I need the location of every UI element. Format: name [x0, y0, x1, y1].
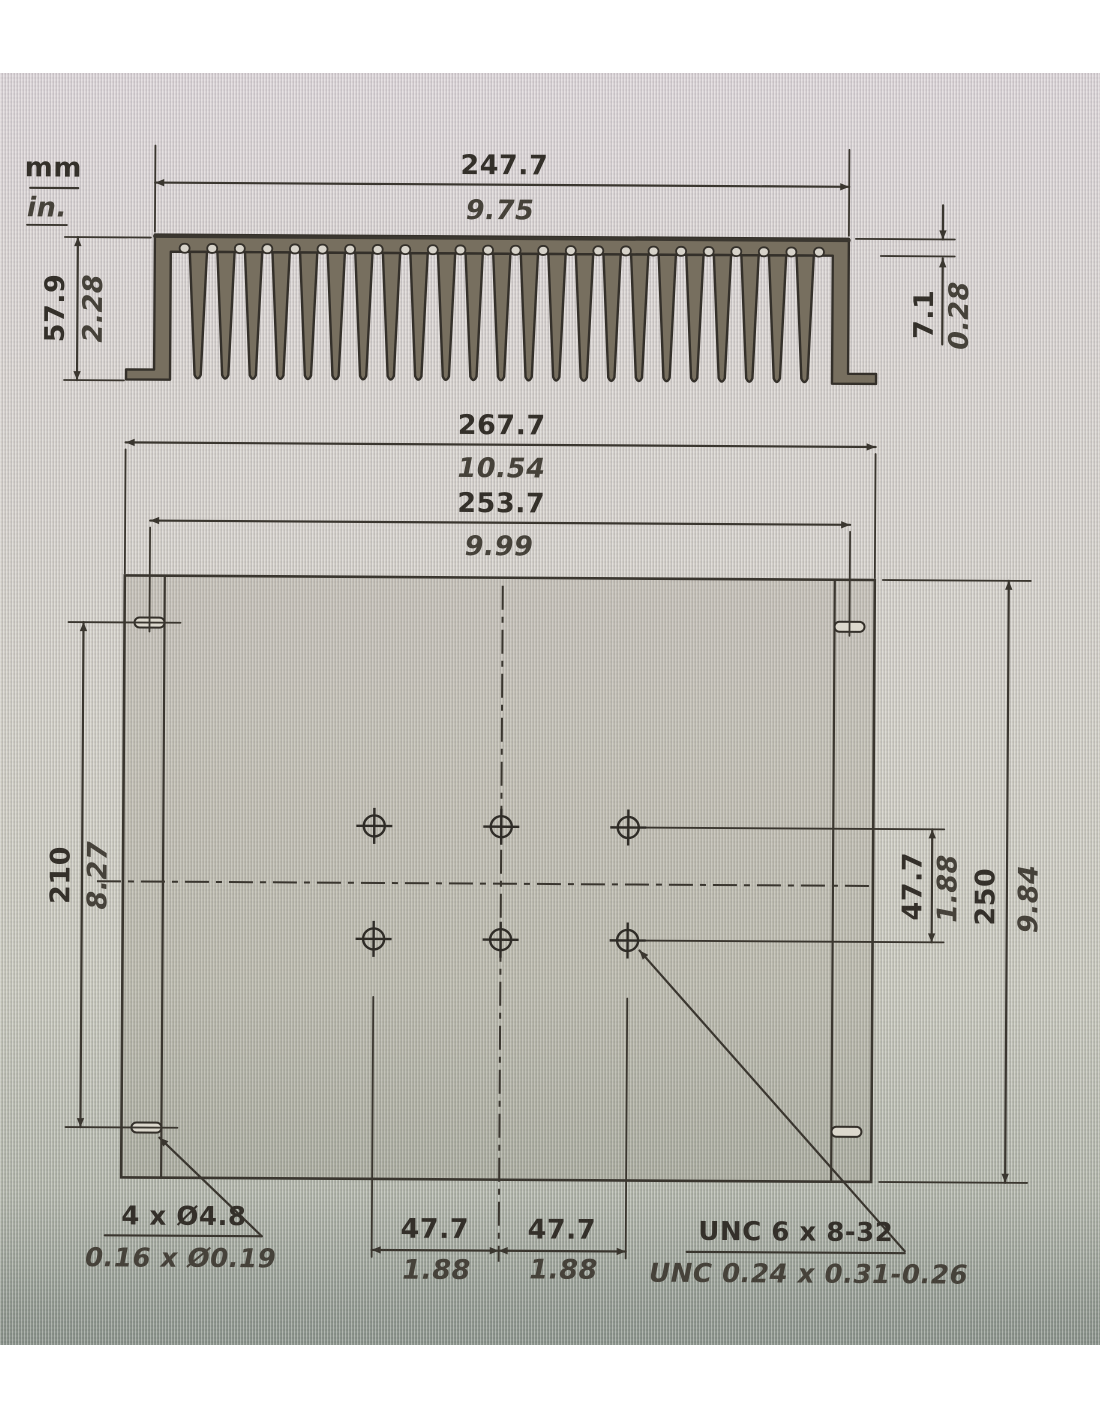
slot-notch — [235, 244, 245, 253]
slot-notch — [704, 247, 714, 256]
fin — [630, 254, 648, 381]
fin — [686, 255, 704, 382]
slot-notch — [593, 246, 603, 255]
dim-line-hole-col-right — [499, 1251, 626, 1252]
slot-notch — [345, 245, 355, 254]
fin — [437, 253, 455, 380]
ext-line — [125, 449, 126, 573]
ext-line — [149, 528, 150, 632]
dim-hole-col-left-mm: 47.7 — [400, 1216, 469, 1243]
dim-base-thickness-mm: 7.1 — [911, 290, 938, 340]
slot-notch — [648, 247, 658, 256]
slot-notch — [483, 246, 493, 255]
mounting-slot-bottom-right — [831, 1127, 861, 1137]
dim-line-fin-width — [155, 183, 849, 187]
fin — [768, 255, 786, 382]
dim-overall-width-mm: 267.7 — [458, 412, 546, 440]
dim-hole-col-right-in: 1.88 — [529, 1256, 598, 1283]
fin — [217, 252, 235, 379]
slot-notch — [428, 245, 438, 254]
dim-line-hole-col-left — [372, 1250, 499, 1251]
fin — [548, 254, 566, 381]
slot-notch — [814, 248, 824, 257]
ext-line — [849, 532, 850, 636]
dim-line-overall-width — [126, 442, 876, 447]
dim-section-height-mm: 57.9 — [42, 274, 69, 343]
ext-line — [155, 146, 156, 232]
slot-notch — [180, 244, 190, 253]
dim-fin-width-in: 9.75 — [466, 197, 535, 224]
slot-notch — [759, 247, 769, 256]
fin — [520, 254, 538, 381]
ext-line — [65, 1127, 177, 1128]
slot-notch — [207, 244, 217, 253]
dim-fin-width-mm: 247.7 — [460, 152, 548, 180]
fin — [741, 255, 759, 382]
ext-line — [69, 622, 181, 623]
fin — [272, 252, 290, 379]
ext-line — [849, 150, 850, 236]
callout-bar-mounting-slots — [105, 1235, 262, 1236]
fin — [575, 254, 593, 381]
fin — [796, 255, 814, 382]
fin — [299, 252, 317, 379]
slot-notch — [621, 246, 631, 255]
fin — [658, 255, 676, 382]
fin — [465, 253, 483, 380]
slot-notch — [566, 246, 576, 255]
dim-slot-vertical-in: 8.27 — [84, 841, 111, 910]
fin — [713, 255, 731, 382]
callout-mounting-slots-in: 0.16 x Ø0.19 — [85, 1245, 276, 1272]
slot-notch — [317, 245, 327, 254]
screen-photo: mm in. 247.7 9.75 57.9 2.28 7.1 0.28 267… — [0, 0, 1100, 1422]
dim-hole-col-right-mm: 47.7 — [527, 1216, 596, 1243]
slot-notch — [400, 245, 410, 254]
slot-notch — [786, 247, 796, 256]
dim-hole-row-mm: 47.7 — [899, 852, 926, 921]
callout-tapped-holes-mm: UNC 6 x 8-32 — [698, 1219, 893, 1246]
units-metric-label: mm — [25, 154, 82, 181]
fin — [244, 252, 262, 379]
fin — [603, 254, 621, 381]
dim-slot-span-mm: 253.7 — [457, 490, 545, 518]
dim-base-thickness-in: 0.28 — [946, 281, 973, 350]
dim-slot-span-in: 9.99 — [465, 533, 534, 560]
callout-tapped-holes-in: UNC 0.24 x 0.31-0.26 — [649, 1261, 968, 1289]
slot-notch — [538, 246, 548, 255]
slot-notch — [373, 245, 383, 254]
fin — [327, 253, 345, 380]
slot-notch — [290, 244, 300, 253]
fin-group — [189, 252, 814, 382]
fin — [382, 253, 400, 380]
dim-hole-col-left-in: 1.88 — [402, 1257, 471, 1284]
dim-line-slot-span — [150, 521, 850, 525]
fin — [492, 254, 510, 381]
slot-notch — [511, 246, 521, 255]
dim-line-overall-depth — [1005, 581, 1009, 1183]
dim-overall-width-in: 10.54 — [457, 455, 545, 483]
plan-plate-outline — [121, 575, 875, 1182]
ext-line — [856, 239, 955, 240]
callout-bar-tapped-holes — [687, 1252, 905, 1253]
slot-notch — [455, 245, 465, 254]
callout-mounting-slots-mm: 4 x Ø4.8 — [121, 1203, 246, 1230]
dim-overall-depth-mm: 250 — [972, 868, 999, 926]
slot-notch — [262, 244, 272, 253]
ext-line — [875, 454, 876, 578]
fin — [189, 252, 207, 379]
dim-overall-depth-in: 9.84 — [1015, 865, 1042, 934]
slot-notch — [731, 247, 741, 256]
fin — [355, 253, 373, 380]
dim-line-base-thickness-bottom — [942, 258, 943, 344]
dim-section-height-in: 2.28 — [80, 274, 107, 343]
dim-hole-row-in: 1.88 — [934, 854, 961, 923]
units-imperial-label: in. — [27, 194, 67, 221]
fin — [410, 253, 428, 380]
heatsink-technical-drawing: mm in. 247.7 9.75 57.9 2.28 7.1 0.28 267… — [0, 0, 1100, 1422]
slot-notch — [676, 247, 686, 256]
dim-slot-vertical-mm: 210 — [47, 846, 74, 904]
